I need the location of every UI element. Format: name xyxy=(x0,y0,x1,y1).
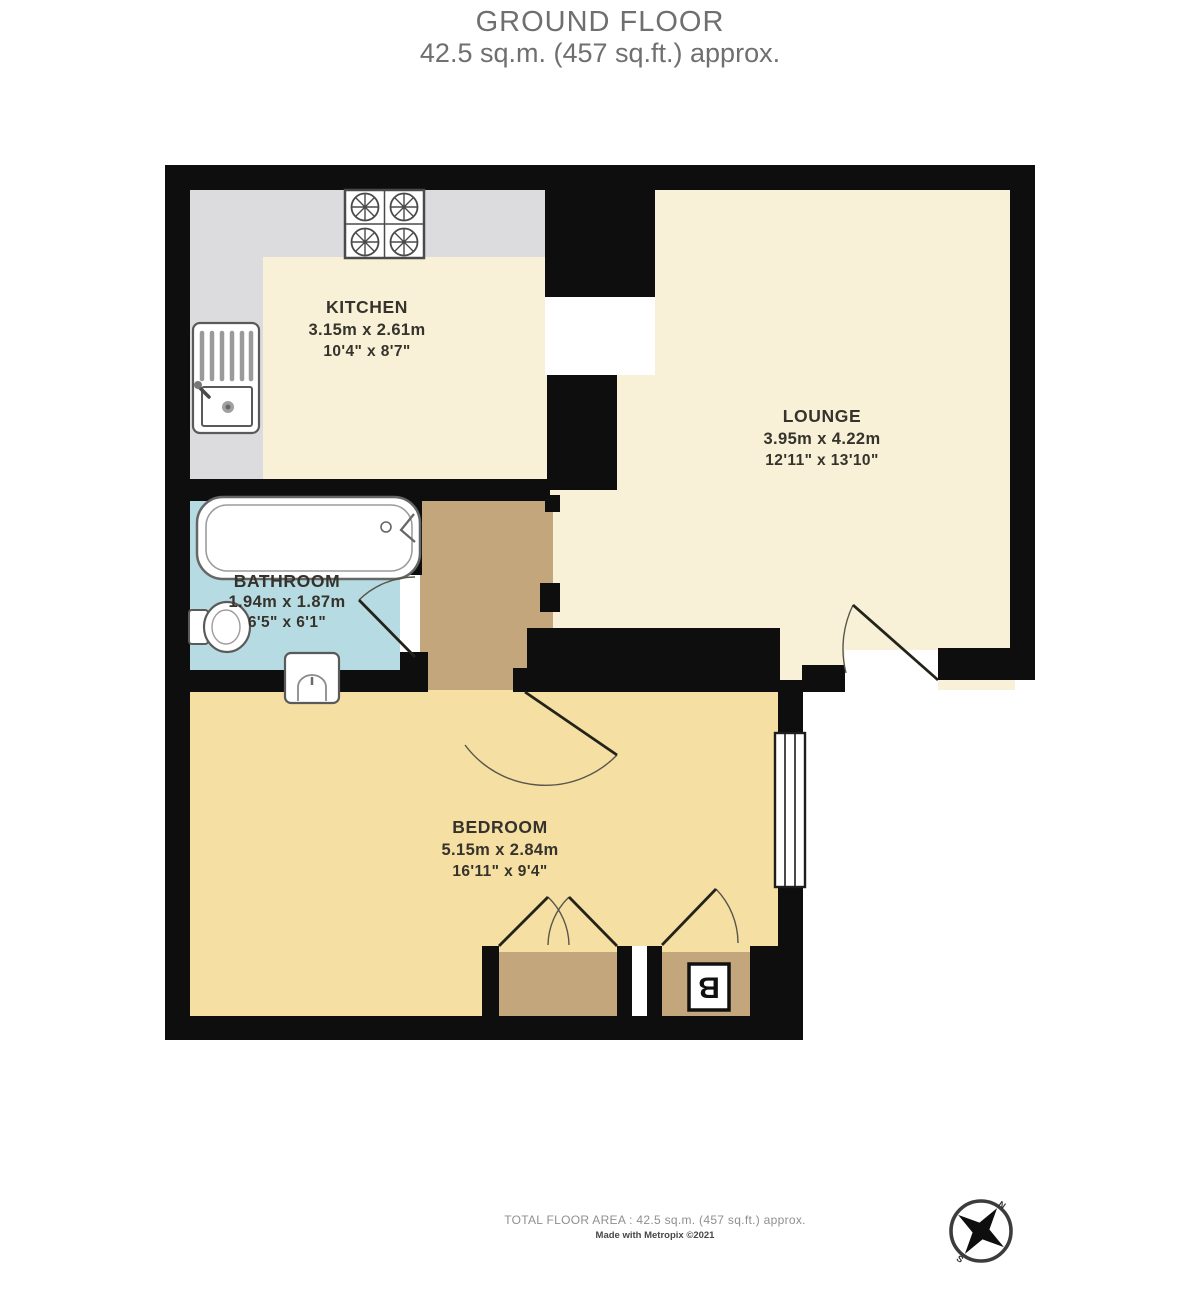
lounge-entrance-gap xyxy=(845,650,938,695)
wall-closet-mid-post-b xyxy=(647,946,662,1016)
bedroom-metric: 5.15m x 2.84m xyxy=(441,841,558,859)
metropix-credit: Made with Metropix ©2021 xyxy=(355,1230,955,1241)
svg-text:N: N xyxy=(996,1199,1007,1211)
bedroom-name: BEDROOM xyxy=(452,817,548,837)
boiler-cupboard: B xyxy=(689,964,729,1010)
hob-icon xyxy=(345,190,424,258)
kitchen-metric: 3.15m x 2.61m xyxy=(308,321,425,339)
wall-closet-mid-post-a xyxy=(617,946,632,1016)
kitchen-name: KITCHEN xyxy=(326,297,408,317)
wall-kitchen-lounge-upper xyxy=(545,190,655,297)
footer: TOTAL FLOOR AREA : 42.5 sq.m. (457 sq.ft… xyxy=(355,1213,955,1241)
lounge-imperial: 12'11" x 13'10" xyxy=(765,452,878,469)
wall-hall-lounge-post xyxy=(540,583,560,612)
wall-bedroom-bottom xyxy=(165,1016,803,1040)
bedroom-imperial: 16'11" x 9'4" xyxy=(452,863,547,880)
wall-hall-top-post xyxy=(545,495,560,512)
floor-area-subtitle: 42.5 sq.m. (457 sq.ft.) approx. xyxy=(0,38,1200,68)
bathroom-metric: 1.94m x 1.87m xyxy=(228,593,345,611)
lounge-metric: 3.95m x 4.22m xyxy=(763,430,880,448)
wall-right xyxy=(1010,165,1035,680)
bathroom-name: BATHROOM xyxy=(234,571,341,591)
bathroom-imperial: 6'5" x 6'1" xyxy=(248,614,326,631)
closet-floor xyxy=(499,952,617,1016)
room-label-kitchen: KITCHEN 3.15m x 2.61m 10'4" x 8'7" xyxy=(308,297,425,360)
compass-icon: N S xyxy=(945,1195,1017,1267)
closet-divider-gap xyxy=(632,946,647,1016)
floorplan-page: GROUND FLOOR 42.5 sq.m. (457 sq.ft.) app… xyxy=(0,0,1200,1302)
wall-kitchen-lounge-lower xyxy=(547,375,617,490)
bath-icon xyxy=(197,497,420,579)
total-floor-area: TOTAL FLOOR AREA : 42.5 sq.m. (457 sq.ft… xyxy=(355,1213,955,1227)
lounge-name: LOUNGE xyxy=(783,406,861,426)
wall-lounge-bottom-right xyxy=(938,648,1035,680)
wall-closet-left-post xyxy=(482,946,499,1016)
kitchen-imperial: 10'4" x 8'7" xyxy=(323,343,410,360)
kitchen-lounge-opening xyxy=(545,297,655,375)
wall-top xyxy=(165,165,1035,190)
kitchen-sink-icon xyxy=(193,323,259,433)
svg-text:S: S xyxy=(955,1253,966,1265)
wall-lounge-bedroom-block xyxy=(527,628,780,692)
basin-icon xyxy=(285,653,339,703)
wall-closet-right-post xyxy=(750,946,778,1016)
window xyxy=(775,733,805,887)
compass-star xyxy=(958,1208,1004,1254)
wall-lounge-door-stub xyxy=(802,665,845,692)
wall-left xyxy=(165,165,190,1040)
page-title: GROUND FLOOR 42.5 sq.m. (457 sq.ft.) app… xyxy=(0,6,1200,68)
floor-title: GROUND FLOOR xyxy=(0,6,1200,38)
room-label-bedroom: BEDROOM 5.15m x 2.84m 16'11" x 9'4" xyxy=(441,817,558,880)
boiler-label: B xyxy=(698,971,720,1004)
floor-plan: B xyxy=(165,155,1035,1040)
